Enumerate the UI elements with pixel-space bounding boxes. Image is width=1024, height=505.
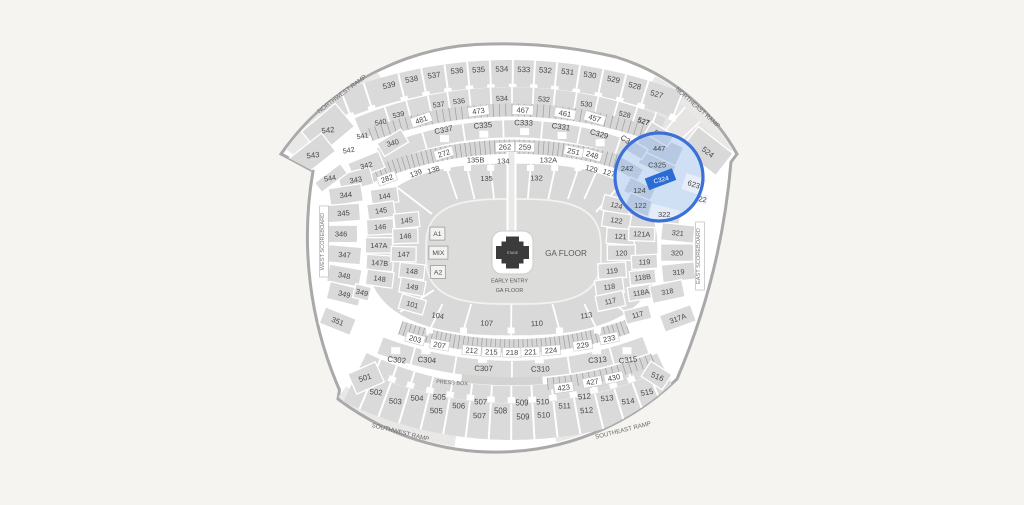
svg-text:224: 224 xyxy=(544,345,557,355)
svg-text:119: 119 xyxy=(606,266,618,276)
svg-text:107: 107 xyxy=(480,318,493,328)
svg-text:104: 104 xyxy=(431,310,445,321)
svg-text:147A: 147A xyxy=(370,241,387,250)
svg-text:135B: 135B xyxy=(467,156,485,165)
svg-text:145: 145 xyxy=(374,205,387,216)
svg-text:C307: C307 xyxy=(474,364,493,373)
svg-text:319: 319 xyxy=(672,267,685,277)
svg-text:447: 447 xyxy=(653,144,666,153)
svg-text:135: 135 xyxy=(480,174,493,183)
svg-text:503: 503 xyxy=(388,396,402,406)
svg-text:262: 262 xyxy=(498,142,511,151)
svg-text:GA FLOOR: GA FLOOR xyxy=(496,288,524,294)
svg-text:146: 146 xyxy=(374,222,387,232)
svg-text:511: 511 xyxy=(558,401,571,410)
svg-text:242: 242 xyxy=(621,164,634,173)
svg-text:530: 530 xyxy=(580,99,593,110)
svg-text:533: 533 xyxy=(517,65,530,74)
svg-text:320: 320 xyxy=(671,248,683,257)
svg-text:505: 505 xyxy=(433,392,447,401)
svg-text:212: 212 xyxy=(465,345,478,355)
svg-text:532: 532 xyxy=(538,94,551,104)
svg-text:346: 346 xyxy=(335,230,348,239)
svg-text:530: 530 xyxy=(583,70,598,81)
svg-text:259: 259 xyxy=(518,142,531,151)
svg-text:514: 514 xyxy=(621,396,636,407)
svg-text:122: 122 xyxy=(634,201,647,210)
svg-text:322: 322 xyxy=(658,210,671,219)
svg-text:120: 120 xyxy=(615,248,627,257)
svg-text:A2: A2 xyxy=(434,269,443,276)
svg-text:132: 132 xyxy=(530,174,543,183)
svg-text:124: 124 xyxy=(633,186,646,195)
svg-text:505: 505 xyxy=(430,406,444,415)
svg-text:542: 542 xyxy=(321,125,335,135)
svg-text:218: 218 xyxy=(506,348,519,357)
svg-text:119: 119 xyxy=(638,257,650,267)
svg-text:MIX: MIX xyxy=(432,250,445,257)
svg-text:473: 473 xyxy=(472,106,486,117)
svg-text:WEST SCOREBOARD: WEST SCOREBOARD xyxy=(320,213,326,270)
svg-text:534: 534 xyxy=(495,64,509,73)
svg-text:534: 534 xyxy=(496,94,508,103)
svg-text:146: 146 xyxy=(399,231,411,240)
svg-text:148: 148 xyxy=(405,266,418,276)
svg-text:543: 543 xyxy=(306,150,320,160)
svg-text:147: 147 xyxy=(397,250,409,259)
svg-text:147B: 147B xyxy=(371,258,389,268)
svg-text:508: 508 xyxy=(494,406,507,415)
svg-text:C333: C333 xyxy=(514,118,533,128)
svg-text:536: 536 xyxy=(453,96,466,106)
svg-text:122: 122 xyxy=(610,215,623,226)
svg-text:EAST SCOREBOARD: EAST SCOREBOARD xyxy=(696,228,702,284)
svg-text:536: 536 xyxy=(450,66,464,76)
svg-text:504: 504 xyxy=(410,393,424,403)
svg-text:215: 215 xyxy=(485,347,498,356)
svg-text:118: 118 xyxy=(603,282,616,293)
svg-text:229: 229 xyxy=(576,340,590,351)
svg-text:344: 344 xyxy=(339,190,352,200)
svg-text:509: 509 xyxy=(515,399,528,408)
svg-text:347: 347 xyxy=(338,250,351,260)
svg-text:502: 502 xyxy=(369,387,383,397)
svg-text:145: 145 xyxy=(400,215,413,225)
svg-text:C335: C335 xyxy=(473,120,493,131)
svg-text:144: 144 xyxy=(378,191,391,202)
svg-text:C325: C325 xyxy=(648,160,666,169)
svg-text:EARLY ENTRY: EARLY ENTRY xyxy=(491,278,528,284)
svg-text:535: 535 xyxy=(472,65,486,75)
svg-text:121A: 121A xyxy=(633,229,650,239)
svg-text:221: 221 xyxy=(524,347,537,356)
svg-text:148: 148 xyxy=(373,273,386,284)
svg-text:541: 541 xyxy=(356,130,369,141)
svg-text:132A: 132A xyxy=(540,156,558,165)
svg-text:423: 423 xyxy=(557,382,571,393)
svg-text:C304: C304 xyxy=(417,355,437,365)
svg-text:513: 513 xyxy=(600,393,614,403)
svg-text:345: 345 xyxy=(337,208,350,218)
svg-text:510: 510 xyxy=(537,410,551,419)
svg-text:512: 512 xyxy=(578,392,592,402)
svg-text:113: 113 xyxy=(580,310,593,321)
svg-text:507: 507 xyxy=(474,397,487,406)
svg-text:510: 510 xyxy=(536,397,550,406)
svg-text:GA FLOOR: GA FLOOR xyxy=(545,249,587,258)
svg-text:512: 512 xyxy=(580,405,594,415)
svg-text:121: 121 xyxy=(614,232,627,242)
svg-text:467: 467 xyxy=(516,105,529,114)
svg-text:531: 531 xyxy=(561,67,575,77)
svg-text:STAGE: STAGE xyxy=(507,251,519,255)
svg-text:532: 532 xyxy=(539,65,553,75)
svg-text:134: 134 xyxy=(497,157,510,166)
svg-text:A1: A1 xyxy=(433,231,442,238)
svg-text:509: 509 xyxy=(516,413,529,422)
svg-text:537: 537 xyxy=(432,99,445,110)
svg-text:C313: C313 xyxy=(588,355,607,365)
svg-text:506: 506 xyxy=(452,401,465,410)
svg-text:537: 537 xyxy=(427,70,441,81)
svg-text:C310: C310 xyxy=(531,364,550,373)
svg-text:110: 110 xyxy=(531,319,543,329)
svg-text:507: 507 xyxy=(473,411,486,420)
svg-text:118B: 118B xyxy=(634,272,651,283)
svg-text:321: 321 xyxy=(671,228,684,238)
